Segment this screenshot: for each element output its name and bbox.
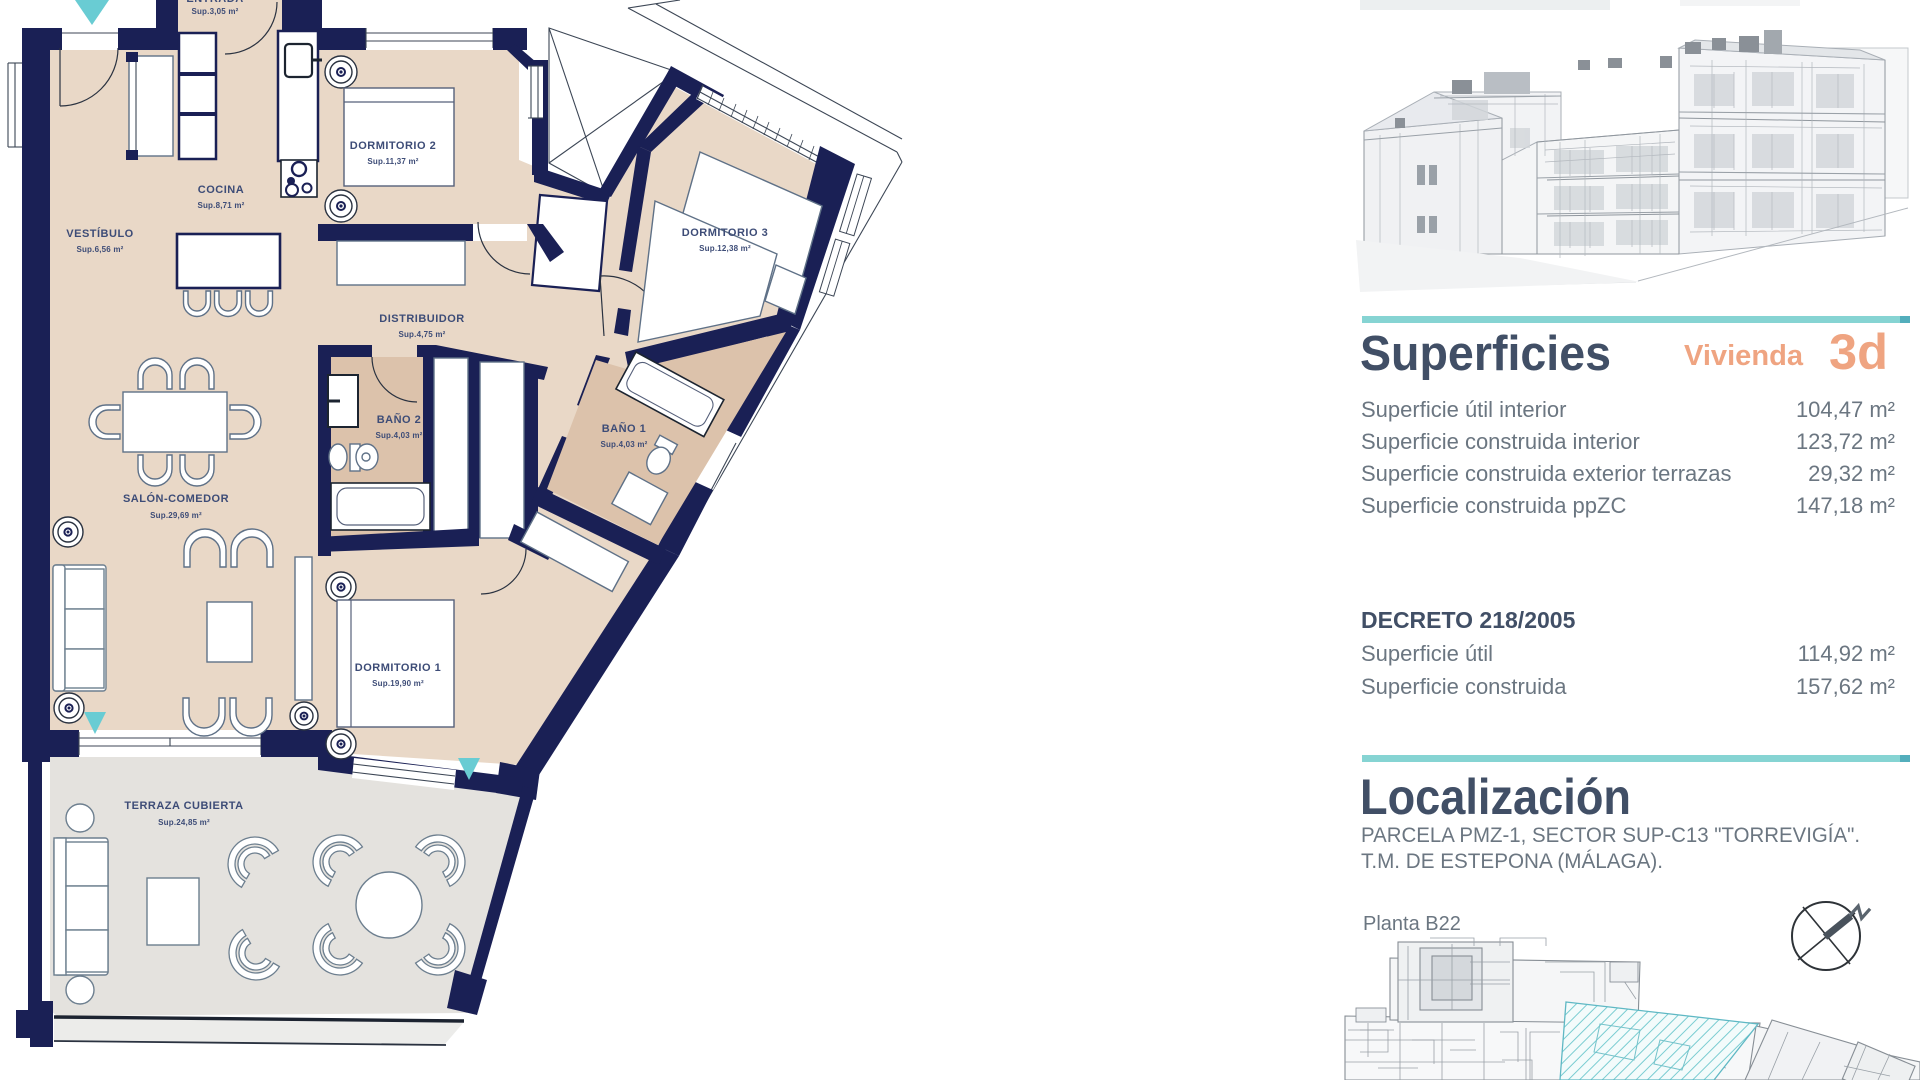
svg-text:Localización: Localización bbox=[1360, 769, 1631, 825]
svg-text:Planta B22: Planta B22 bbox=[1363, 913, 1461, 935]
svg-text:123,72 m²: 123,72 m² bbox=[1796, 429, 1895, 454]
svg-text:DORMITORIO 3: DORMITORIO 3 bbox=[682, 227, 768, 239]
svg-text:DISTRIBUIDOR: DISTRIBUIDOR bbox=[379, 313, 464, 325]
svg-text:Superficie construida exterior: Superficie construida exterior terrazas bbox=[1361, 461, 1732, 486]
svg-text:Sup.11,37 m²: Sup.11,37 m² bbox=[367, 157, 418, 166]
svg-text:Sup.6,56 m²: Sup.6,56 m² bbox=[76, 245, 123, 254]
svg-text:147,18 m²: 147,18 m² bbox=[1796, 493, 1895, 518]
svg-text:PARCELA PMZ-1, SECTOR SUP-C13: PARCELA PMZ-1, SECTOR SUP-C13 "TORREVIGÍ… bbox=[1361, 824, 1860, 847]
svg-text:SALÓN-COMEDOR: SALÓN-COMEDOR bbox=[123, 492, 229, 505]
svg-text:TERRAZA CUBIERTA: TERRAZA CUBIERTA bbox=[124, 800, 243, 812]
svg-text:Sup.4,03 m²: Sup.4,03 m² bbox=[375, 431, 422, 440]
svg-text:Superficies: Superficies bbox=[1360, 327, 1611, 381]
svg-text:104,47 m²: 104,47 m² bbox=[1796, 397, 1895, 422]
svg-text:Superficie útil interior: Superficie útil interior bbox=[1361, 397, 1566, 422]
svg-text:Superficie construida: Superficie construida bbox=[1361, 674, 1567, 699]
svg-text:Sup.24,85 m²: Sup.24,85 m² bbox=[158, 818, 210, 827]
svg-text:Superficie construida ppZC: Superficie construida ppZC bbox=[1361, 493, 1626, 518]
svg-text:157,62 m²: 157,62 m² bbox=[1796, 674, 1895, 699]
svg-text:114,92 m²: 114,92 m² bbox=[1798, 641, 1895, 666]
svg-text:Sup.12,38 m²: Sup.12,38 m² bbox=[699, 244, 751, 253]
svg-text:ENTRADA: ENTRADA bbox=[186, 0, 243, 5]
svg-text:VESTÍBULO: VESTÍBULO bbox=[66, 227, 133, 240]
svg-text:Sup.8,71 m²: Sup.8,71 m² bbox=[197, 201, 244, 210]
svg-text:T.M. DE ESTEPONA (MÁLAGA).: T.M. DE ESTEPONA (MÁLAGA). bbox=[1361, 850, 1663, 873]
svg-text:Sup.4,03 m²: Sup.4,03 m² bbox=[600, 440, 647, 449]
svg-text:BAÑO 1: BAÑO 1 bbox=[602, 422, 647, 435]
svg-text:BAÑO 2: BAÑO 2 bbox=[377, 413, 422, 426]
svg-text:COCINA: COCINA bbox=[198, 184, 244, 196]
svg-text:Sup.29,69 m²: Sup.29,69 m² bbox=[150, 511, 202, 520]
svg-text:3d: 3d bbox=[1829, 324, 1888, 380]
svg-text:DECRETO 218/2005: DECRETO 218/2005 bbox=[1361, 607, 1576, 633]
svg-text:Sup.19,90 m²: Sup.19,90 m² bbox=[372, 679, 424, 688]
svg-text:Superficie útil: Superficie útil bbox=[1361, 641, 1493, 666]
svg-text:DORMITORIO 2: DORMITORIO 2 bbox=[350, 140, 436, 152]
svg-text:Vivienda: Vivienda bbox=[1684, 340, 1804, 372]
svg-text:Sup.4,75 m²: Sup.4,75 m² bbox=[398, 330, 445, 339]
svg-text:DORMITORIO 1: DORMITORIO 1 bbox=[355, 662, 441, 674]
svg-text:Sup.3,05 m²: Sup.3,05 m² bbox=[191, 7, 238, 16]
svg-text:29,32 m²: 29,32 m² bbox=[1808, 461, 1895, 486]
svg-text:Superficie construida interior: Superficie construida interior bbox=[1361, 429, 1640, 454]
